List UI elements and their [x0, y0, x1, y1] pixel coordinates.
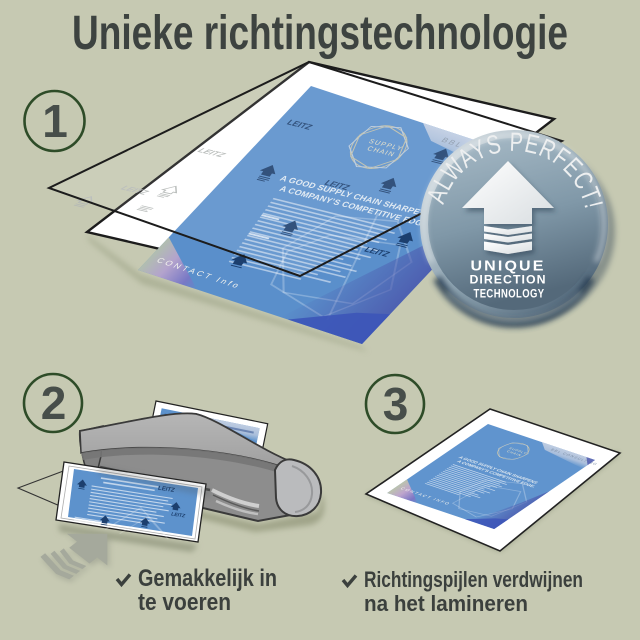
svg-text:Gemakkelijk in: Gemakkelijk in	[138, 565, 277, 592]
svg-text:DIRECTION: DIRECTION	[470, 273, 547, 287]
svg-text:Unieke richtingstechnologie: Unieke richtingstechnologie	[72, 7, 568, 60]
svg-text:1: 1	[42, 95, 68, 147]
svg-text:TECHNOLOGY: TECHNOLOGY	[474, 289, 545, 301]
svg-text:3: 3	[383, 378, 409, 430]
svg-text:na het lamineren: na het lamineren	[364, 591, 528, 616]
svg-text:Richtingspijlen verdwijnen: Richtingspijlen verdwijnen	[364, 567, 583, 592]
svg-text:te voeren: te voeren	[138, 589, 231, 616]
svg-text:2: 2	[41, 377, 67, 429]
